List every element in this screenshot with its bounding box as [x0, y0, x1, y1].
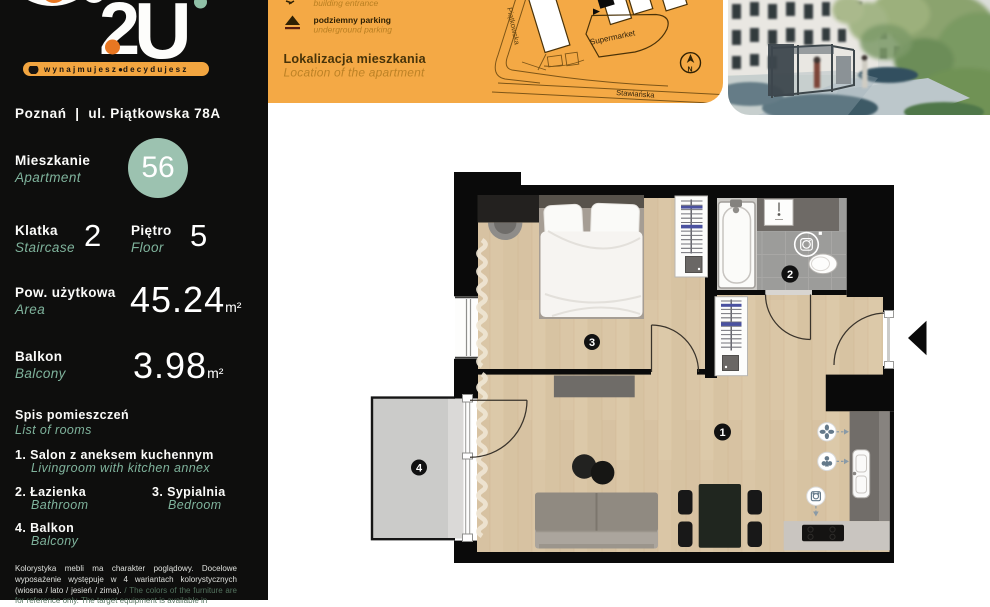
svg-text:4: 4 [416, 463, 423, 475]
svg-text:2: 2 [787, 269, 793, 281]
svg-text:3: 3 [589, 337, 595, 349]
svg-text:1: 1 [719, 427, 725, 439]
